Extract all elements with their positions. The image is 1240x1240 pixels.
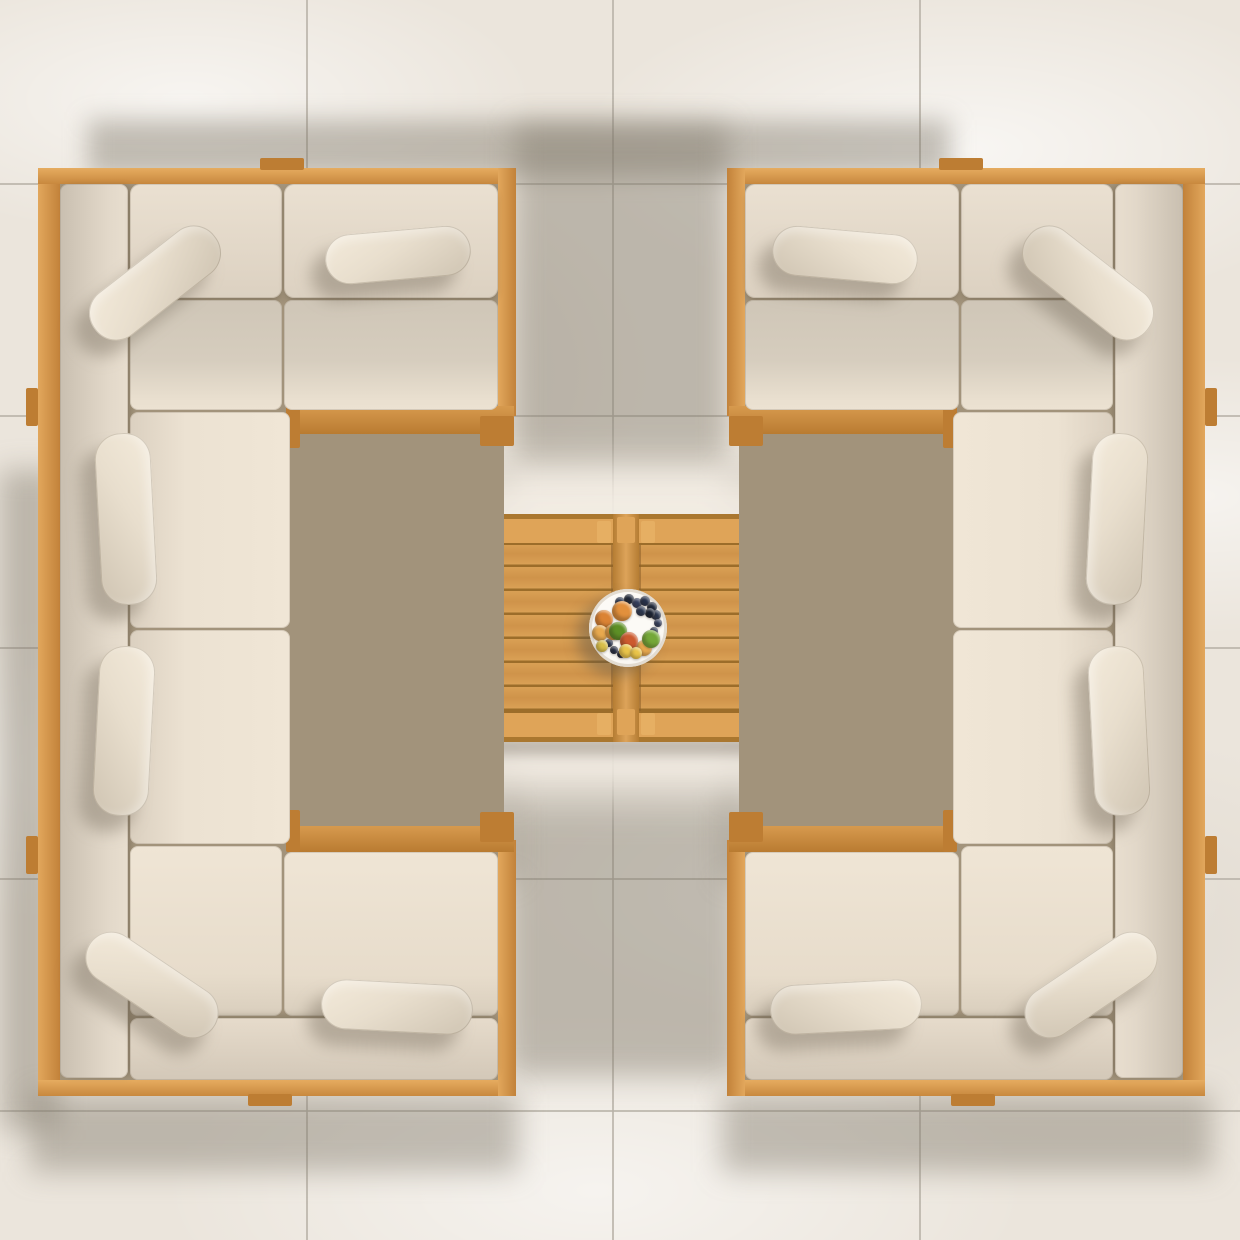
sofa-wood-tab <box>1205 836 1217 874</box>
sofa-wood-tab <box>951 1094 995 1106</box>
sofa-wood-tab <box>939 158 983 170</box>
sofa-wood-top-arm-end-rail <box>727 168 745 416</box>
sofa-wood-bottom-arm-end-rail <box>727 840 745 1096</box>
sofa-wood-tab <box>1205 388 1217 426</box>
patio-scene: Top-down view of a symmetrical outdoor t… <box>0 0 1240 1240</box>
arm-lumbar-pillow <box>769 978 923 1036</box>
spine-lumbar-pillow <box>1087 645 1152 818</box>
sofa-wood-left-outer-rail <box>1183 168 1205 1096</box>
spine-lumbar-pillow <box>1085 432 1150 607</box>
right-sectional <box>0 0 1240 1240</box>
sofa-wood-tab <box>729 812 763 842</box>
sofa-wood-tab <box>729 416 763 446</box>
sofa-wood-top-outer-rail <box>727 168 1205 184</box>
arm-seat-cushion <box>745 300 959 410</box>
